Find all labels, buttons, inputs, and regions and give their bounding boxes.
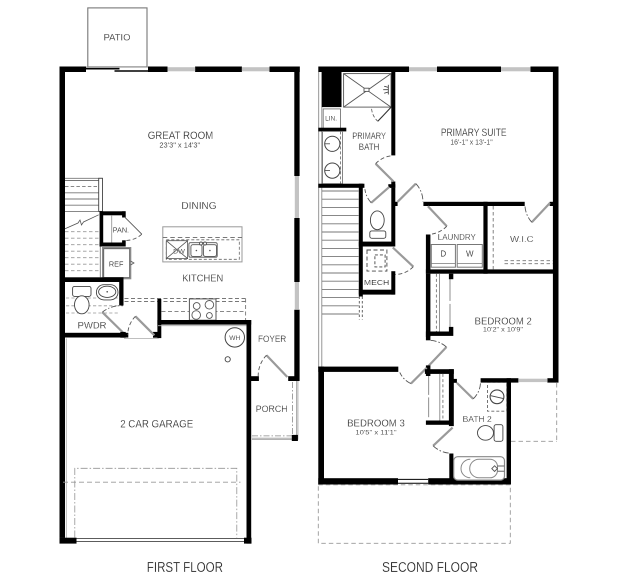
svg-text:23'3" x 14'3": 23'3" x 14'3" <box>159 142 200 149</box>
svg-text:BATH: BATH <box>359 141 380 152</box>
svg-text:16'-1" x 13'-1": 16'-1" x 13'-1" <box>450 139 493 146</box>
svg-text:GREAT ROOM: GREAT ROOM <box>148 130 214 142</box>
svg-text:MECH: MECH <box>364 278 389 287</box>
svg-text:2 CAR GARAGE: 2 CAR GARAGE <box>120 418 193 430</box>
svg-text:PRIMARY: PRIMARY <box>352 130 386 141</box>
svg-text:10'5" x 11'1": 10'5" x 11'1" <box>355 430 397 437</box>
svg-text:PRIMARY SUITE: PRIMARY SUITE <box>441 127 507 139</box>
svg-text:DINING: DINING <box>181 201 216 212</box>
svg-text:D: D <box>440 250 446 259</box>
svg-text:SECOND FLOOR: SECOND FLOOR <box>382 560 478 576</box>
svg-text:10'2" x 10'9": 10'2" x 10'9" <box>483 327 524 334</box>
svg-text:PAN.: PAN. <box>113 227 129 234</box>
svg-text:LAUNDRY: LAUNDRY <box>438 232 476 242</box>
svg-text:PORCH: PORCH <box>256 403 288 414</box>
svg-text:WH: WH <box>229 335 240 342</box>
svg-text:LIN.: LIN. <box>325 117 337 123</box>
svg-text:BEDROOM 3: BEDROOM 3 <box>347 418 405 429</box>
svg-text:W: W <box>466 250 474 259</box>
svg-text:PWDR: PWDR <box>78 320 107 331</box>
svg-text:FOYER: FOYER <box>258 333 286 344</box>
svg-text:PATIO: PATIO <box>104 32 131 43</box>
svg-text:W.I.C: W.I.C <box>510 234 534 244</box>
svg-text:DW: DW <box>173 249 185 256</box>
svg-text:BATH 2: BATH 2 <box>463 414 492 424</box>
svg-text:KITCHEN: KITCHEN <box>182 273 223 284</box>
svg-text:FIRST FLOOR: FIRST FLOOR <box>147 560 223 576</box>
svg-text:REF: REF <box>109 262 124 269</box>
